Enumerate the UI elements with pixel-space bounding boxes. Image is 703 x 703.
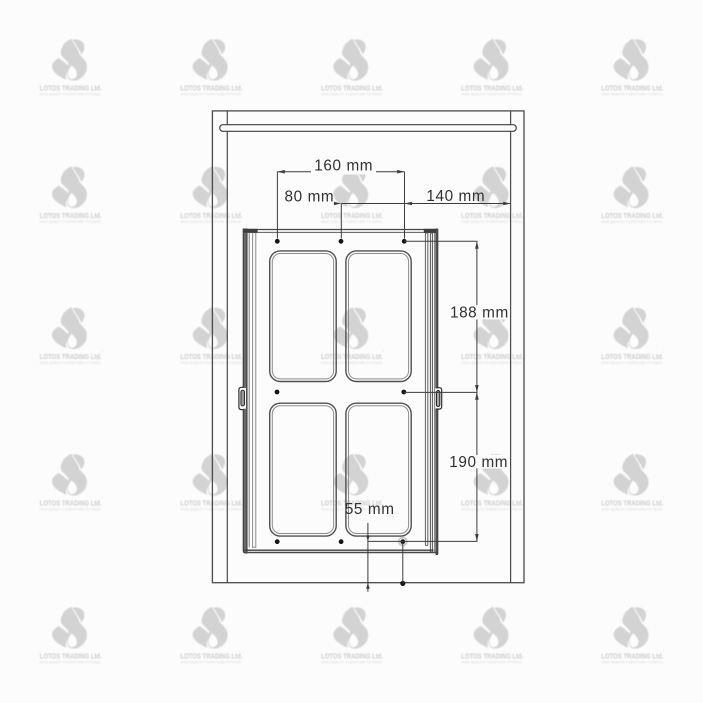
svg-text:55 mm: 55 mm: [345, 501, 395, 518]
svg-text:160 mm: 160 mm: [314, 157, 373, 174]
svg-text:80 mm: 80 mm: [285, 189, 335, 206]
svg-text:140 mm: 140 mm: [426, 188, 485, 205]
svg-text:188 mm: 188 mm: [450, 304, 509, 321]
svg-text:190 mm: 190 mm: [449, 454, 508, 471]
